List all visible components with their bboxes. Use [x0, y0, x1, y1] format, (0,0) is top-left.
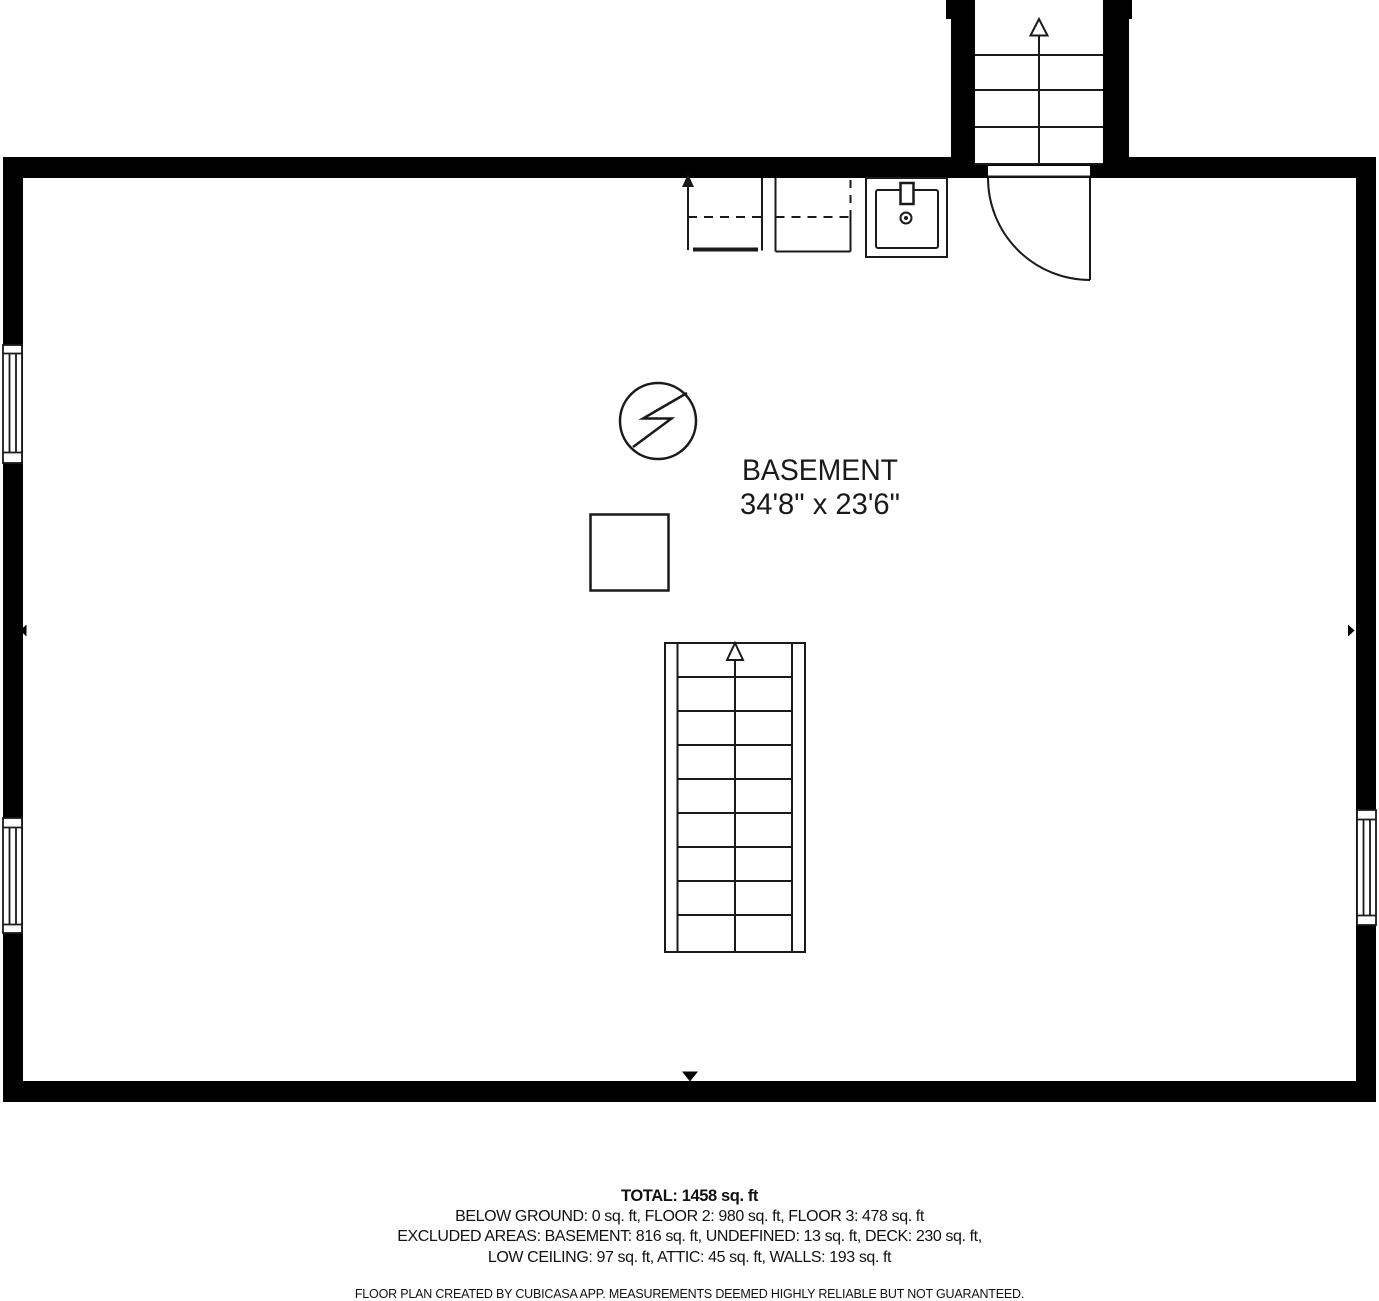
window-left-lower — [3, 818, 22, 933]
sink-icon — [866, 178, 947, 257]
room-dimensions-label: 34'8" x 23'6" — [740, 488, 900, 521]
disclaimer-text: FLOOR PLAN CREATED BY CUBICASA APP. MEAS… — [0, 1287, 1379, 1301]
window-left-upper — [3, 345, 22, 463]
wall-bottom — [3, 1081, 1376, 1102]
window-frame — [3, 818, 22, 933]
electrical-panel-icon — [620, 383, 696, 459]
window-frame — [3, 345, 22, 463]
stairwell-wall-right — [1103, 0, 1129, 178]
excluded-area-text-1: EXCLUDED AREAS: BASEMENT: 816 sq. ft, UN… — [0, 1227, 1379, 1248]
stairwell-wall-left — [951, 0, 975, 178]
wall-arrow-right-icon — [1348, 625, 1355, 637]
window-frame — [1357, 810, 1376, 925]
floor-plan-drawing: BASEMENT 34'8" x 23'6" — [0, 0, 1379, 1301]
wall-left — [3, 157, 23, 1102]
sink-faucet — [901, 183, 914, 204]
room-name-label: BASEMENT — [742, 454, 898, 487]
stairwell-wall-left-cap — [946, 0, 978, 19]
upper-staircase — [975, 0, 1103, 164]
floor-plan-page: BASEMENT 34'8" x 23'6" — [0, 0, 1379, 1301]
wall-top — [3, 157, 1376, 178]
area-summary: TOTAL: 1458 sq. ft BELOW GROUND: 0 sq. f… — [0, 1186, 1379, 1268]
door-swing-arc — [988, 178, 1090, 280]
total-area-text: TOTAL: 1458 sq. ft — [0, 1186, 1379, 1207]
stairwell-wall-right-cap — [1099, 0, 1132, 19]
support-post — [591, 515, 669, 591]
wall-right — [1356, 157, 1376, 1102]
washer-icon — [682, 174, 762, 251]
dryer-icon — [776, 178, 851, 252]
floors-area-text: BELOW GROUND: 0 sq. ft, FLOOR 2: 980 sq.… — [0, 1207, 1379, 1228]
window-right — [1357, 810, 1376, 925]
sink-drain-dot — [904, 216, 908, 220]
wall-arrow-down-icon — [682, 1072, 698, 1082]
excluded-area-text-2: LOW CEILING: 97 sq. ft, ATTIC: 45 sq. ft… — [0, 1248, 1379, 1269]
main-staircase — [665, 643, 805, 952]
lightning-bolt-icon — [633, 393, 687, 447]
door-threshold — [988, 166, 1090, 176]
basement-door — [988, 166, 1090, 280]
